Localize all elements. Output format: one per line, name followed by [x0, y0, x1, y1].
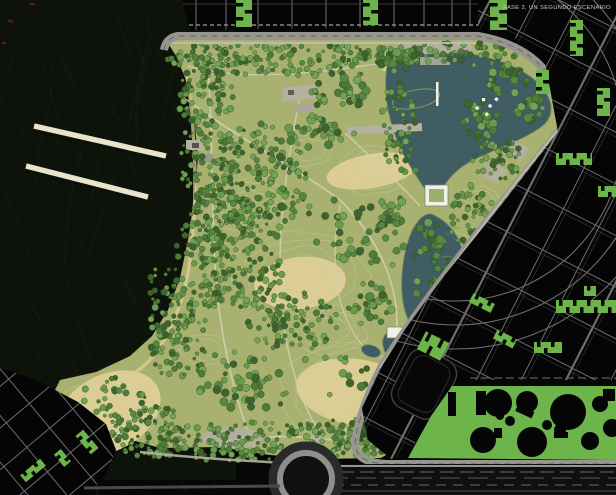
lake-pier — [436, 82, 439, 106]
phase-label: FASE 2, UN SEGUNDO ESCENARIO — [503, 5, 611, 11]
masterplan-rendering: FASE 2, UN SEGUNDO ESCENARIO — [0, 0, 616, 495]
roundabout — [280, 453, 332, 495]
lake-pavilion — [425, 185, 448, 206]
masterplan-canvas: FASE 2, UN SEGUNDO ESCENARIO — [0, 0, 616, 495]
